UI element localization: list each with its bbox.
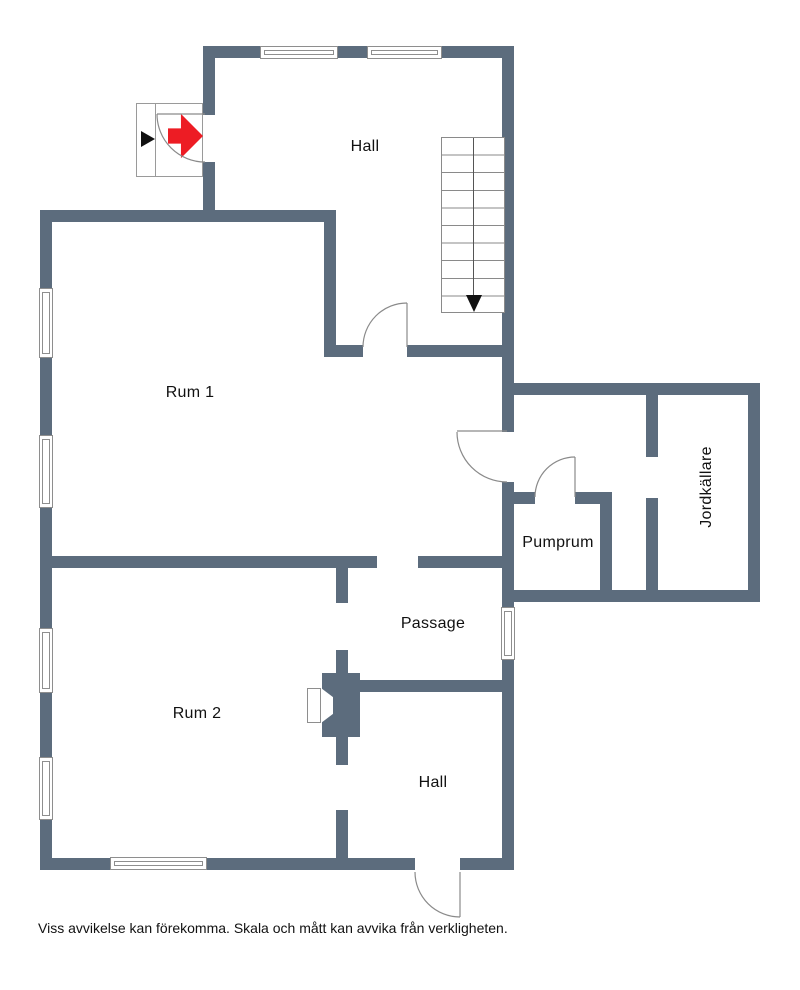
door-swings-layer	[0, 0, 800, 990]
door-entrance	[157, 114, 205, 162]
room-label-hall-top: Hall	[351, 138, 380, 156]
room-label-rum2: Rum 2	[173, 705, 222, 723]
door-exterior-south	[415, 872, 460, 917]
disclaimer-text: Viss avvikelse kan förekomma. Skala och …	[38, 920, 508, 936]
floorplan-canvas: Hall Rum 1 Rum 2 Passage Pumprum Jordkäl…	[0, 0, 800, 990]
door-pumprum	[535, 457, 575, 497]
door-hall-inner	[363, 303, 407, 347]
room-label-rum1: Rum 1	[166, 384, 215, 402]
room-label-passage: Passage	[401, 615, 465, 633]
room-label-pumprum: Pumprum	[522, 534, 593, 552]
room-label-jordkallare: Jordkällare	[698, 446, 716, 528]
door-rum1-landing	[457, 431, 507, 482]
room-label-hall-bottom: Hall	[419, 774, 448, 792]
